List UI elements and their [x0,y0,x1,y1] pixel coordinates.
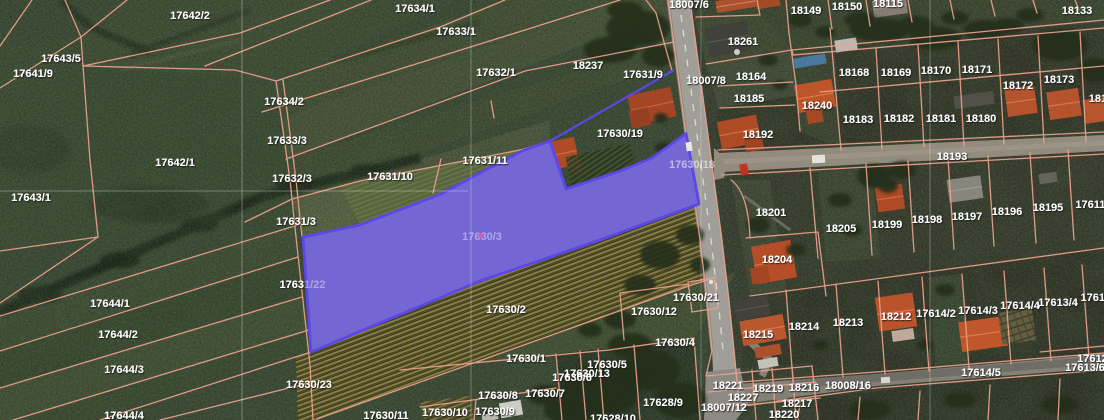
svg-text:17611/3: 17611/3 [1075,199,1104,211]
svg-text:17630/11: 17630/11 [363,410,408,420]
svg-text:18204: 18204 [762,254,793,266]
svg-text:18180: 18180 [966,113,997,125]
svg-text:18221: 18221 [713,380,744,392]
svg-text:18150: 18150 [832,1,863,13]
svg-text:18183: 18183 [843,114,874,126]
svg-text:18170: 18170 [921,65,952,77]
svg-text:18212: 18212 [881,311,912,323]
svg-text:17630/23: 17630/23 [286,379,332,391]
svg-text:18171: 18171 [962,64,993,76]
svg-text:17614/5: 17614/5 [961,367,1001,379]
svg-text:18198: 18198 [912,214,943,226]
svg-text:17630/21: 17630/21 [673,292,719,304]
svg-text:17630/10: 17630/10 [422,407,468,419]
svg-text:17628/9: 17628/9 [643,397,683,409]
svg-text:18008/16: 18008/16 [825,380,871,392]
svg-text:18214: 18214 [789,321,820,333]
svg-text:18115: 18115 [873,0,903,10]
svg-text:18199: 18199 [872,219,903,231]
svg-text:17630/5: 17630/5 [587,359,627,371]
svg-text:18261: 18261 [728,36,759,48]
svg-text:18133: 18133 [1062,5,1093,17]
svg-text:17644/1: 17644/1 [90,298,130,310]
svg-text:17633/3: 17633/3 [267,135,307,147]
svg-text:18201: 18201 [756,207,787,219]
svg-text:17644/3: 17644/3 [104,364,144,376]
svg-text:17630/8: 17630/8 [478,390,518,402]
svg-text:17614/2: 17614/2 [916,308,956,320]
svg-text:17641/9: 17641/9 [13,68,53,80]
svg-text:17634/1: 17634/1 [395,3,435,15]
svg-text:17643/5: 17643/5 [41,53,81,65]
svg-text:18213: 18213 [833,317,864,329]
svg-text:17634/2: 17634/2 [264,96,304,108]
svg-text:18197: 18197 [952,211,983,223]
svg-text:18185: 18185 [734,93,765,105]
svg-text:18196: 18196 [992,206,1023,218]
svg-text:18181: 18181 [926,113,957,125]
svg-text:17633/1: 17633/1 [436,26,476,38]
svg-text:17630/18: 17630/18 [669,159,715,171]
svg-text:17630/19: 17630/19 [597,128,643,140]
svg-text:18220: 18220 [769,409,800,420]
svg-text:17614/4: 17614/4 [1000,300,1041,312]
svg-text:18172: 18172 [1003,80,1034,92]
svg-text:17632/3: 17632/3 [272,173,312,185]
svg-text:17630/1: 17630/1 [506,353,546,365]
svg-text:17631/10: 17631/10 [367,171,413,183]
svg-text:18192: 18192 [743,129,774,141]
svg-text:18007/6: 18007/6 [669,0,709,11]
svg-text:17643/1: 17643/1 [11,192,51,204]
svg-text:18193: 18193 [937,151,968,163]
svg-text:17632/1: 17632/1 [476,67,516,79]
svg-text:17630/7: 17630/7 [525,388,565,400]
svg-text:18168: 18168 [839,67,870,79]
svg-text:17630/2: 17630/2 [486,304,526,316]
svg-text:18215: 18215 [743,329,774,341]
svg-text:17631/9: 17631/9 [623,69,663,81]
svg-text:18173: 18173 [1044,74,1075,86]
svg-text:17611/: 17611/ [1080,292,1104,304]
svg-text:18164: 18164 [736,71,767,83]
svg-text:18182: 18182 [884,113,915,125]
svg-text:17628/10: 17628/10 [590,413,636,420]
svg-text:1/22: 1/22 [304,279,325,291]
svg-text:18007/12: 18007/12 [701,402,747,414]
svg-text:17631/11: 17631/11 [462,155,507,167]
svg-text:17644/2: 17644/2 [98,329,138,341]
svg-text:18216: 18216 [789,382,820,394]
svg-text:1763: 1763 [280,279,304,291]
svg-text:17630/9: 17630/9 [475,406,515,418]
svg-text:17630/12: 17630/12 [631,306,677,318]
svg-text:17614/3: 17614/3 [958,305,998,317]
svg-text:17644/4: 17644/4 [104,410,145,420]
svg-text:17630/4: 17630/4 [655,337,696,349]
svg-text:18205: 18205 [826,223,857,235]
svg-text:17613/4: 17613/4 [1038,297,1079,309]
svg-text:17642/1: 17642/1 [155,157,195,169]
svg-text:18174: 18174 [1089,93,1104,105]
svg-text:18237: 18237 [573,60,604,72]
svg-text:17631/3: 17631/3 [276,216,316,228]
svg-text:18195: 18195 [1033,202,1064,214]
svg-text:17642/2: 17642/2 [170,10,210,22]
svg-text:18240: 18240 [802,100,833,112]
svg-text:18007/8: 18007/8 [686,75,726,87]
svg-text:18169: 18169 [881,67,912,79]
svg-text:17613/6: 17613/6 [1065,362,1104,374]
svg-text:18149: 18149 [791,5,822,17]
